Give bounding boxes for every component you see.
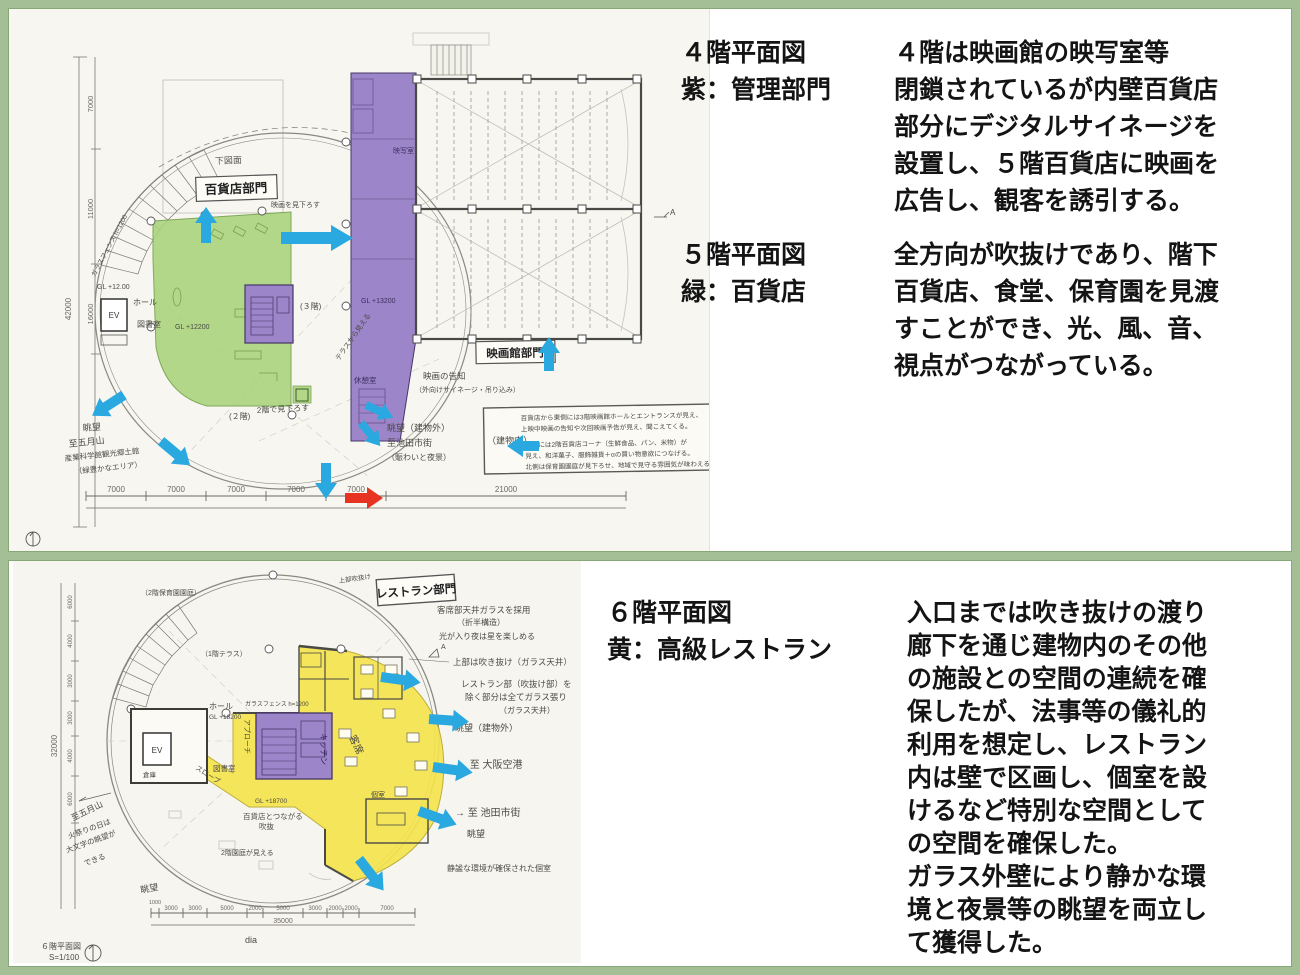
restaurant-label-box: レストラン部門 bbox=[375, 574, 457, 606]
gl-label-6f: GL +18700 bbox=[255, 798, 287, 805]
svg-text:3000: 3000 bbox=[164, 906, 178, 912]
roof-block bbox=[413, 33, 489, 45]
underlay-label: 下図面 bbox=[215, 155, 242, 166]
svg-text:5000: 5000 bbox=[220, 906, 234, 912]
dim-left-seg: 7000 bbox=[86, 96, 95, 113]
caption-6f-subtitle: 黄：高級レストラン bbox=[607, 632, 832, 669]
caption-6f-body: 入口までは吹き抜けの渡り 廊下を通じ建物内のその他 の施設との空間の連続を確 保… bbox=[907, 597, 1207, 960]
svg-text:光が入り夜は星を楽しめる: 光が入り夜は星を楽しめる bbox=[439, 631, 535, 641]
section-marker-a: A bbox=[654, 208, 676, 217]
view-6f: 眺望 bbox=[467, 828, 485, 839]
svg-text:21000: 21000 bbox=[495, 485, 518, 494]
dim-left-total: 42000 bbox=[64, 297, 73, 320]
floor2-label: (２階) bbox=[229, 411, 251, 421]
svg-text:7000: 7000 bbox=[380, 906, 394, 912]
caption-4f-title: ４階平面図 bbox=[681, 35, 831, 72]
nursery-view-label: 2階園庭が見える bbox=[221, 848, 274, 857]
gl-hall-label: GL +12.00 bbox=[97, 284, 130, 291]
svg-text:除く部分は全てガラス張り: 除く部分は全てガラス張り bbox=[465, 692, 567, 702]
caption-6f: ６階平面図 黄：高級レストラン bbox=[607, 595, 832, 669]
to-ikeda-city: → 至 池田市街 bbox=[455, 806, 521, 819]
management-strip bbox=[351, 73, 416, 441]
fence-label-6f: ガラスフェンス h=1200 bbox=[245, 700, 309, 708]
svg-text:6000: 6000 bbox=[68, 595, 74, 609]
stair-core-6f: キッチン bbox=[256, 713, 332, 779]
elevator-block-6f: EV 倉庫 bbox=[131, 709, 207, 783]
svg-text:2000: 2000 bbox=[248, 906, 262, 912]
flow-arrow-sse bbox=[154, 433, 197, 474]
compass-icon bbox=[26, 532, 40, 546]
caption-6f-title: ６階平面図 bbox=[607, 595, 832, 632]
curved-stair-6f bbox=[113, 605, 197, 707]
svg-text:上部は吹き抜け（ガラス天井）: 上部は吹き抜け（ガラス天井） bbox=[453, 657, 572, 667]
dept-label-box: 百貨店部門 bbox=[196, 175, 278, 202]
svg-text:7000: 7000 bbox=[227, 485, 245, 494]
hall-label-6f: ホール bbox=[209, 702, 233, 711]
top-stair-block bbox=[431, 45, 471, 75]
marker-a-6f: A bbox=[441, 644, 446, 651]
svg-text:7000: 7000 bbox=[347, 485, 365, 494]
svg-text:4000: 4000 bbox=[68, 749, 74, 763]
svg-text:客席部天井ガラスを採用: 客席部天井ガラスを採用 bbox=[437, 605, 530, 615]
library-label: 図書室 bbox=[137, 319, 161, 329]
svg-text:（ガラス天井）: （ガラス天井） bbox=[499, 705, 555, 715]
svg-text:5000: 5000 bbox=[276, 906, 290, 912]
private-room-label: 個室 bbox=[371, 790, 385, 799]
svg-text:7000: 7000 bbox=[107, 485, 125, 494]
plan-scale-title: ６階平面図 bbox=[41, 941, 81, 951]
svg-text:（折半構造）: （折半構造） bbox=[457, 617, 505, 627]
svg-text:3000: 3000 bbox=[188, 906, 202, 912]
restroom-label: 休憩室 bbox=[354, 375, 377, 385]
svg-text:吹抜: 吹抜 bbox=[259, 821, 274, 831]
compass-icon-6f bbox=[85, 945, 101, 961]
ev-label: EV bbox=[109, 311, 120, 320]
svg-text:1000: 1000 bbox=[149, 900, 161, 906]
movie-theater bbox=[413, 75, 641, 343]
cinema-view-label: 映画を見下ろす bbox=[271, 200, 320, 209]
panel-floor6: 32000 6000 4000 3000 3000 4000 6000 bbox=[8, 560, 1292, 967]
to-satsukiyama-label: 至五月山 bbox=[68, 435, 105, 449]
view-sw-label: 眺望 bbox=[139, 881, 159, 895]
svg-text:4000: 4000 bbox=[68, 634, 74, 648]
svg-text:できる: できる bbox=[83, 852, 107, 868]
signage-label: 映画の告知 bbox=[423, 371, 466, 381]
svg-text:A: A bbox=[670, 208, 676, 217]
store-label: 倉庫 bbox=[143, 770, 157, 779]
approach-label: アプローチ bbox=[243, 719, 251, 754]
svg-text:7000: 7000 bbox=[287, 485, 305, 494]
strip-gl-label: GL +13200 bbox=[361, 298, 396, 305]
dimension-left-6f bbox=[61, 583, 79, 909]
library-label-6f: 図書室 bbox=[213, 763, 236, 773]
floorplan-4f-5f: 42000 7000 11000 16000 下図面 bbox=[9, 9, 709, 551]
top-void-note: 上部吹抜け bbox=[338, 572, 371, 585]
floorplan-6f: 32000 6000 4000 3000 3000 4000 6000 bbox=[9, 561, 589, 966]
caption-5f-subtitle: 緑：百貨店 bbox=[681, 274, 806, 311]
svg-text:32000: 32000 bbox=[50, 734, 59, 757]
svg-text:7000: 7000 bbox=[167, 485, 185, 494]
slide-page: { "colors": { "frame_green": "#a4be96", … bbox=[0, 0, 1300, 975]
void-link-label: 百貨店とつながる bbox=[243, 811, 303, 821]
terrace-1f-note: （1階テラス） bbox=[201, 649, 247, 658]
east-labels: 眺望（建物外） 至池田市街 （賑わいと夜景） bbox=[387, 422, 451, 462]
svg-text:6000: 6000 bbox=[68, 792, 74, 806]
kitchen-label: キッチン bbox=[319, 733, 328, 765]
ev-label-6f: EV bbox=[152, 746, 163, 755]
svg-text:2000: 2000 bbox=[328, 906, 342, 912]
pencil-furniture bbox=[169, 811, 331, 879]
plan-scale-value: S=1/100 bbox=[49, 953, 80, 962]
stair-core bbox=[245, 285, 293, 343]
svg-text:3000: 3000 bbox=[308, 906, 322, 912]
hall-label: ホール bbox=[133, 298, 157, 307]
svg-text:2000: 2000 bbox=[344, 906, 358, 912]
caption-4f-body: ４階は映画館の映写室等 閉鎖されているが内壁百貨店 部分にデジタルサイネージを … bbox=[894, 35, 1219, 220]
view-label: 眺望 bbox=[82, 421, 101, 433]
svg-text:百貨店部門: 百貨店部門 bbox=[205, 180, 268, 197]
floor3-label: (３階) bbox=[300, 301, 322, 311]
svg-text:映画館部門: 映画館部門 bbox=[486, 345, 544, 360]
dia-label: dia bbox=[245, 935, 257, 945]
panel-floor4-5: 42000 7000 11000 16000 下図面 bbox=[8, 8, 1292, 552]
hall-gl-label: GL +18200 bbox=[209, 714, 241, 721]
svg-text:35000: 35000 bbox=[273, 918, 293, 925]
svg-text:3000: 3000 bbox=[68, 711, 74, 725]
dim-left-seg: 16000 bbox=[86, 304, 95, 325]
west-labels: 眺望 至五月山 産業科学館観光郷土館 （緑豊かなエリア） bbox=[64, 421, 142, 476]
gl-green-label: GL +12200 bbox=[175, 324, 210, 331]
flow-arrow-right-big bbox=[281, 225, 353, 251]
projection-room-label: 映写室 bbox=[393, 146, 414, 155]
svg-text:（緑豊かなエリア）: （緑豊かなエリア） bbox=[74, 459, 142, 476]
caption-4f-subtitle: 紫：管理部門 bbox=[681, 72, 831, 109]
caption-5f-title: ５階平面図 bbox=[681, 237, 806, 274]
svg-text:（賑わいと夜景）: （賑わいと夜景） bbox=[387, 452, 451, 462]
caption-5f: ５階平面図 緑：百貨店 bbox=[681, 237, 806, 311]
svg-text:3000: 3000 bbox=[68, 674, 74, 688]
caption-4f: ４階平面図 紫：管理部門 bbox=[681, 35, 831, 109]
caption-5f-body: 全方向が吹抜けであり、階下 百貨店、食堂、保育園を見渡 すことができ、光、風、音… bbox=[894, 237, 1219, 385]
nursery-note: （2階保育園園庭） bbox=[141, 588, 201, 597]
svg-text:レストラン部（吹抜け部）を: レストラン部（吹抜け部）を bbox=[461, 679, 572, 689]
to-ikeda-label: 至池田市街 bbox=[387, 437, 432, 448]
view-out-label: 眺望（建物外） bbox=[387, 422, 450, 433]
elevator-block: EV bbox=[101, 299, 127, 345]
dim-left-seg: 11000 bbox=[86, 199, 95, 219]
signage-label2: （外向けサイネージ・吊り込み） bbox=[415, 385, 520, 394]
private-room-note: 静謐な環境が確保された個室 bbox=[447, 863, 551, 873]
